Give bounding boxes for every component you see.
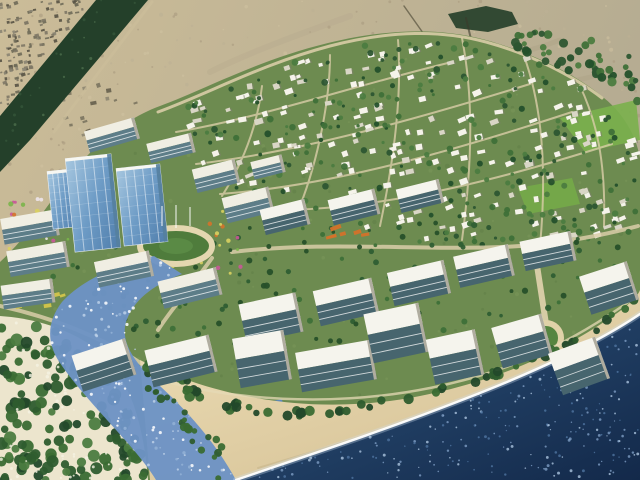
scene-root	[0, 0, 640, 480]
scene-svg	[0, 0, 640, 480]
masterplan-aerial-render: Bird's-eye 3D master-plan rendering of a…	[0, 0, 640, 480]
